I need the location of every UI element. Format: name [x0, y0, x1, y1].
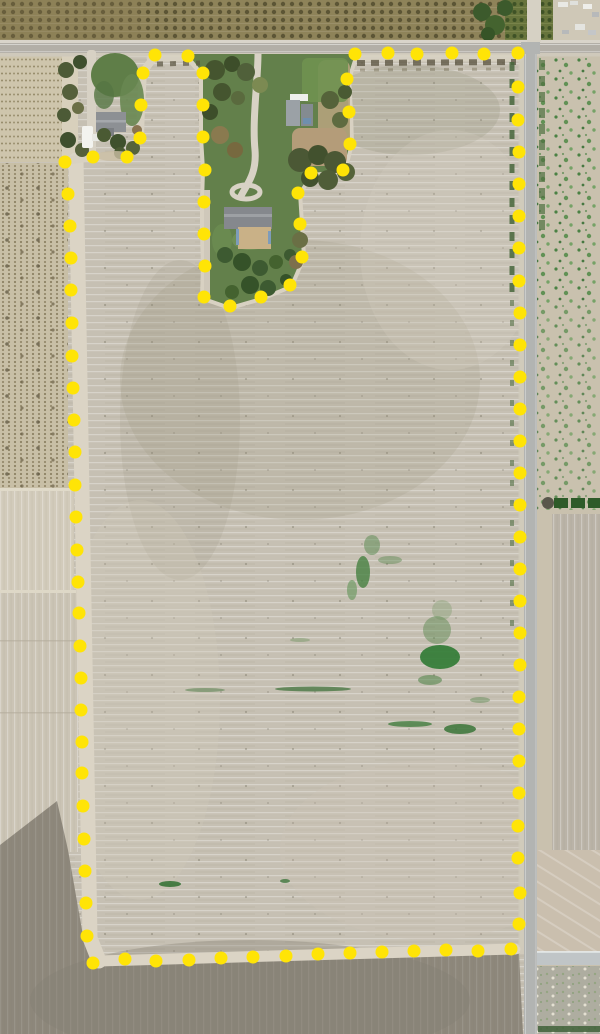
- boundary-vertex[interactable]: [70, 511, 83, 524]
- boundary-vertex[interactable]: [305, 167, 318, 180]
- boundary-vertex[interactable]: [512, 81, 525, 94]
- boundary-vertex[interactable]: [337, 164, 350, 177]
- boundary-vertex[interactable]: [408, 945, 421, 958]
- boundary-vertex[interactable]: [255, 291, 268, 304]
- boundary-vertex[interactable]: [150, 955, 163, 968]
- road-vertical: [524, 54, 537, 1034]
- boundary-vertex[interactable]: [74, 640, 87, 653]
- boundary-vertex[interactable]: [514, 595, 527, 608]
- boundary-vertex[interactable]: [513, 691, 526, 704]
- boundary-vertex[interactable]: [62, 188, 75, 201]
- orchard-strip: [0, 0, 600, 42]
- boundary-vertex[interactable]: [513, 918, 526, 931]
- boundary-vertex[interactable]: [75, 672, 88, 685]
- boundary-vertex[interactable]: [505, 943, 518, 956]
- house-main-roof: [224, 207, 272, 229]
- boundary-vertex[interactable]: [382, 47, 395, 60]
- boundary-vertex[interactable]: [224, 300, 237, 313]
- boundary-vertex[interactable]: [71, 544, 84, 557]
- boundary-vertex[interactable]: [514, 887, 527, 900]
- boundary-vertex[interactable]: [121, 151, 134, 164]
- boundary-vertex[interactable]: [478, 48, 491, 61]
- boundary-vertex[interactable]: [66, 317, 79, 330]
- boundary-vertex[interactable]: [514, 371, 527, 384]
- boundary-vertex[interactable]: [65, 252, 78, 265]
- boundary-vertex[interactable]: [312, 948, 325, 961]
- boundary-vertex[interactable]: [198, 196, 211, 209]
- boundary-vertex[interactable]: [149, 49, 162, 62]
- boundary-vertex[interactable]: [199, 260, 212, 273]
- boundary-vertex[interactable]: [513, 755, 526, 768]
- boundary-vertex[interactable]: [472, 945, 485, 958]
- boundary-vertex[interactable]: [73, 607, 86, 620]
- boundary-vertex[interactable]: [343, 106, 356, 119]
- boundary-vertex[interactable]: [59, 156, 72, 169]
- boundary-vertex[interactable]: [284, 279, 297, 292]
- boundary-vertex[interactable]: [514, 659, 527, 672]
- boundary-vertex[interactable]: [514, 563, 527, 576]
- boundary-vertex[interactable]: [137, 67, 150, 80]
- boundary-vertex[interactable]: [446, 47, 459, 60]
- boundary-vertex[interactable]: [344, 138, 357, 151]
- boundary-vertex[interactable]: [80, 897, 93, 910]
- boundary-vertex[interactable]: [198, 228, 211, 241]
- boundary-vertex[interactable]: [513, 787, 526, 800]
- boundary-vertex[interactable]: [512, 114, 525, 127]
- boundary-vertex[interactable]: [294, 218, 307, 231]
- boundary-vertex[interactable]: [197, 67, 210, 80]
- canal: [537, 952, 600, 965]
- boundary-vertex[interactable]: [135, 99, 148, 112]
- boundary-vertex[interactable]: [76, 736, 89, 749]
- boundary-vertex[interactable]: [215, 952, 228, 965]
- boundary-vertex[interactable]: [341, 73, 354, 86]
- boundary-vertex[interactable]: [514, 627, 527, 640]
- barn-roof: [238, 227, 271, 249]
- vineyard-north: [0, 54, 62, 162]
- boundary-vertex[interactable]: [376, 946, 389, 959]
- boundary-vertex[interactable]: [76, 767, 89, 780]
- boundary-vertex[interactable]: [280, 950, 293, 963]
- boundary-vertex[interactable]: [296, 251, 309, 264]
- boundary-vertex[interactable]: [349, 48, 362, 61]
- boundary-vertex[interactable]: [513, 146, 526, 159]
- boundary-vertex[interactable]: [514, 531, 527, 544]
- boundary-vertex[interactable]: [247, 951, 260, 964]
- boundary-vertex[interactable]: [199, 164, 212, 177]
- boundary-vertex[interactable]: [292, 187, 305, 200]
- boundary-vertex[interactable]: [514, 435, 527, 448]
- boundary-vertex[interactable]: [514, 467, 527, 480]
- boundary-vertex[interactable]: [514, 307, 527, 320]
- boundary-vertex[interactable]: [87, 957, 100, 970]
- boundary-vertex[interactable]: [182, 50, 195, 63]
- boundary-vertex[interactable]: [513, 242, 526, 255]
- boundary-vertex[interactable]: [411, 48, 424, 61]
- boundary-vertex[interactable]: [68, 414, 81, 427]
- shed-white: [82, 126, 93, 148]
- boundary-vertex[interactable]: [67, 382, 80, 395]
- boundary-vertex[interactable]: [87, 151, 100, 164]
- boundary-vertex[interactable]: [183, 954, 196, 967]
- speckled-field-east: [537, 54, 600, 304]
- boundary-vertex[interactable]: [512, 820, 525, 833]
- boundary-vertex[interactable]: [513, 275, 526, 288]
- boundary-vertex[interactable]: [119, 953, 132, 966]
- boundary-vertex[interactable]: [197, 99, 210, 112]
- boundary-vertex[interactable]: [512, 47, 525, 60]
- boundary-vertex[interactable]: [81, 930, 94, 943]
- boundary-vertex[interactable]: [514, 403, 527, 416]
- boundary-vertex[interactable]: [344, 947, 357, 960]
- boundary-vertex[interactable]: [513, 210, 526, 223]
- boundary-vertex[interactable]: [512, 852, 525, 865]
- boundary-vertex[interactable]: [440, 944, 453, 957]
- boundary-vertex[interactable]: [75, 704, 88, 717]
- hedge-shadow: [542, 497, 554, 509]
- boundary-vertex[interactable]: [513, 178, 526, 191]
- boundary-vertex[interactable]: [514, 339, 527, 352]
- boundary-vertex[interactable]: [77, 800, 90, 813]
- aerial-map: [0, 0, 600, 1034]
- boundary-vertex[interactable]: [197, 131, 210, 144]
- boundary-vertex[interactable]: [66, 350, 79, 363]
- boundary-vertex[interactable]: [69, 446, 82, 459]
- boundary-vertex[interactable]: [134, 132, 147, 145]
- boundary-vertex[interactable]: [198, 291, 211, 304]
- boundary-vertex[interactable]: [69, 479, 82, 492]
- boundary-vertex[interactable]: [513, 723, 526, 736]
- boundary-vertex[interactable]: [65, 284, 78, 297]
- boundary-vertex[interactable]: [78, 833, 91, 846]
- aerial-map-canvas: [0, 0, 600, 1034]
- east-strip-fields: [537, 54, 600, 1034]
- boundary-vertex[interactable]: [514, 499, 527, 512]
- boundary-vertex[interactable]: [72, 576, 85, 589]
- boundary-vertex[interactable]: [79, 865, 92, 878]
- boundary-vertex[interactable]: [64, 220, 77, 233]
